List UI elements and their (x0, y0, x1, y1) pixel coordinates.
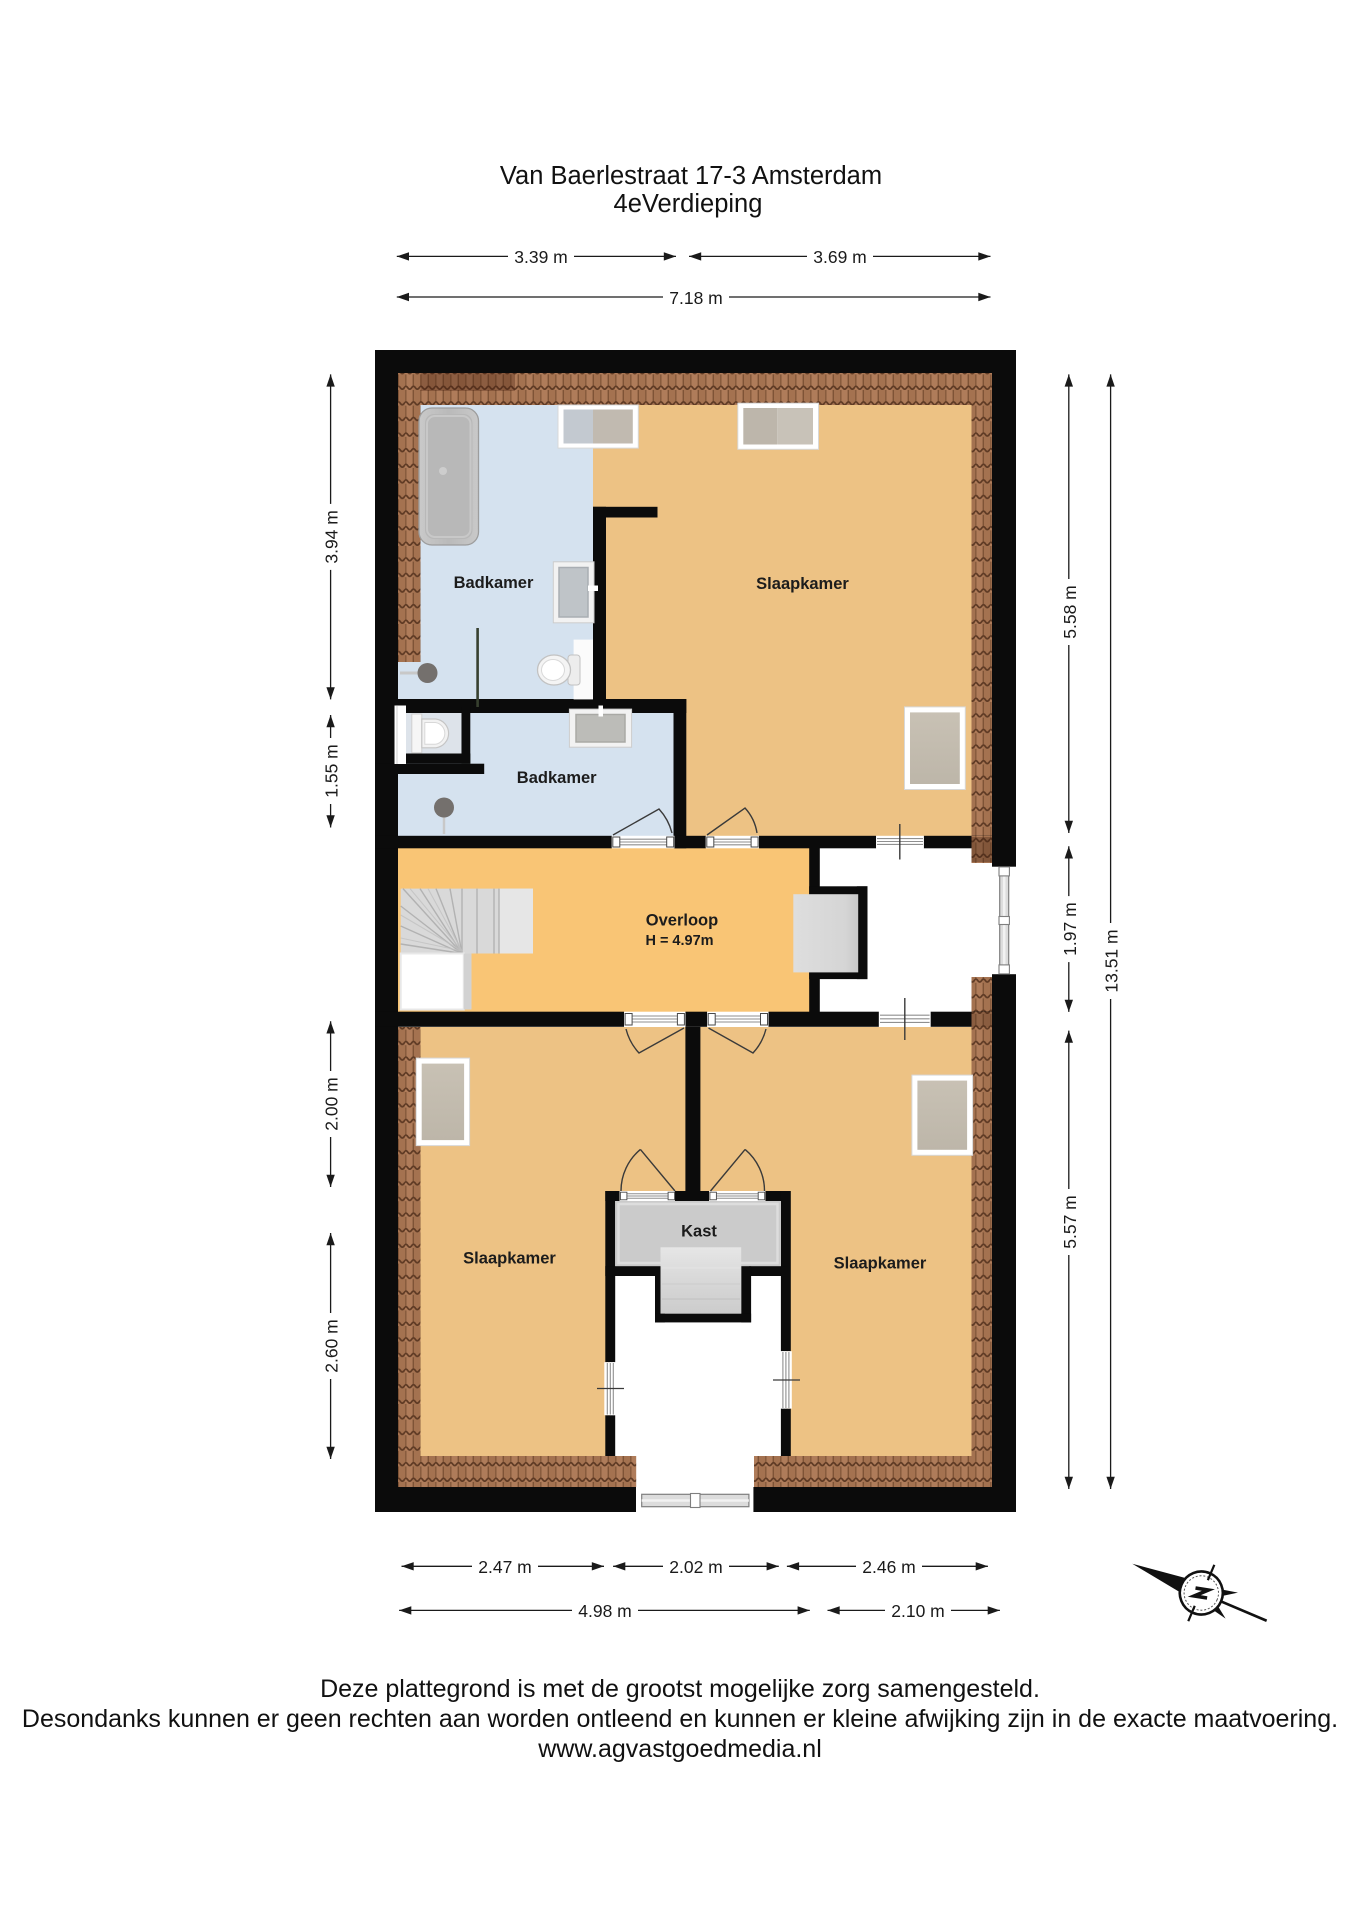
svg-text:Slaapkamer: Slaapkamer (463, 1250, 556, 1268)
svg-text:Badkamer: Badkamer (517, 769, 597, 787)
svg-text:www.agvastgoedmedia.nl: www.agvastgoedmedia.nl (537, 1735, 822, 1763)
svg-text:2.46 m: 2.46 m (862, 1557, 916, 1577)
svg-text:2.02 m: 2.02 m (669, 1557, 723, 1577)
svg-text:Badkamer: Badkamer (454, 574, 534, 592)
svg-text:4.98 m: 4.98 m (578, 1601, 632, 1621)
svg-text:2.60 m: 2.60 m (322, 1319, 342, 1373)
svg-text:Desondanks kunnen er geen rech: Desondanks kunnen er geen rechten aan wo… (22, 1705, 1338, 1733)
svg-text:3.39 m: 3.39 m (514, 247, 568, 267)
svg-text:Slaapkamer: Slaapkamer (834, 1255, 927, 1273)
svg-text:2.47 m: 2.47 m (478, 1557, 532, 1577)
svg-text:5.57 m: 5.57 m (1060, 1195, 1080, 1249)
svg-text:2.00 m: 2.00 m (322, 1077, 342, 1131)
svg-text:1.97 m: 1.97 m (1060, 902, 1080, 956)
svg-text:2.10 m: 2.10 m (891, 1601, 945, 1621)
svg-text:Kast: Kast (681, 1223, 717, 1241)
svg-text:3.69 m: 3.69 m (813, 247, 867, 267)
svg-text:H = 4.97m: H = 4.97m (645, 933, 713, 949)
svg-text:3.94 m: 3.94 m (322, 510, 342, 564)
svg-text:4eVerdieping: 4eVerdieping (614, 190, 763, 218)
svg-text:1.55 m: 1.55 m (322, 744, 342, 798)
svg-text:5.58 m: 5.58 m (1060, 585, 1080, 639)
svg-text:Deze plattegrond is met de gro: Deze plattegrond is met de grootst mogel… (320, 1675, 1040, 1703)
svg-text:7.18 m: 7.18 m (669, 288, 723, 308)
svg-text:13.51 m: 13.51 m (1102, 929, 1122, 992)
svg-text:Overloop: Overloop (646, 912, 718, 930)
svg-text:Slaapkamer: Slaapkamer (756, 575, 849, 593)
svg-text:Van Baerlestraat 17-3 Amsterda: Van Baerlestraat 17-3 Amsterdam (500, 162, 882, 190)
